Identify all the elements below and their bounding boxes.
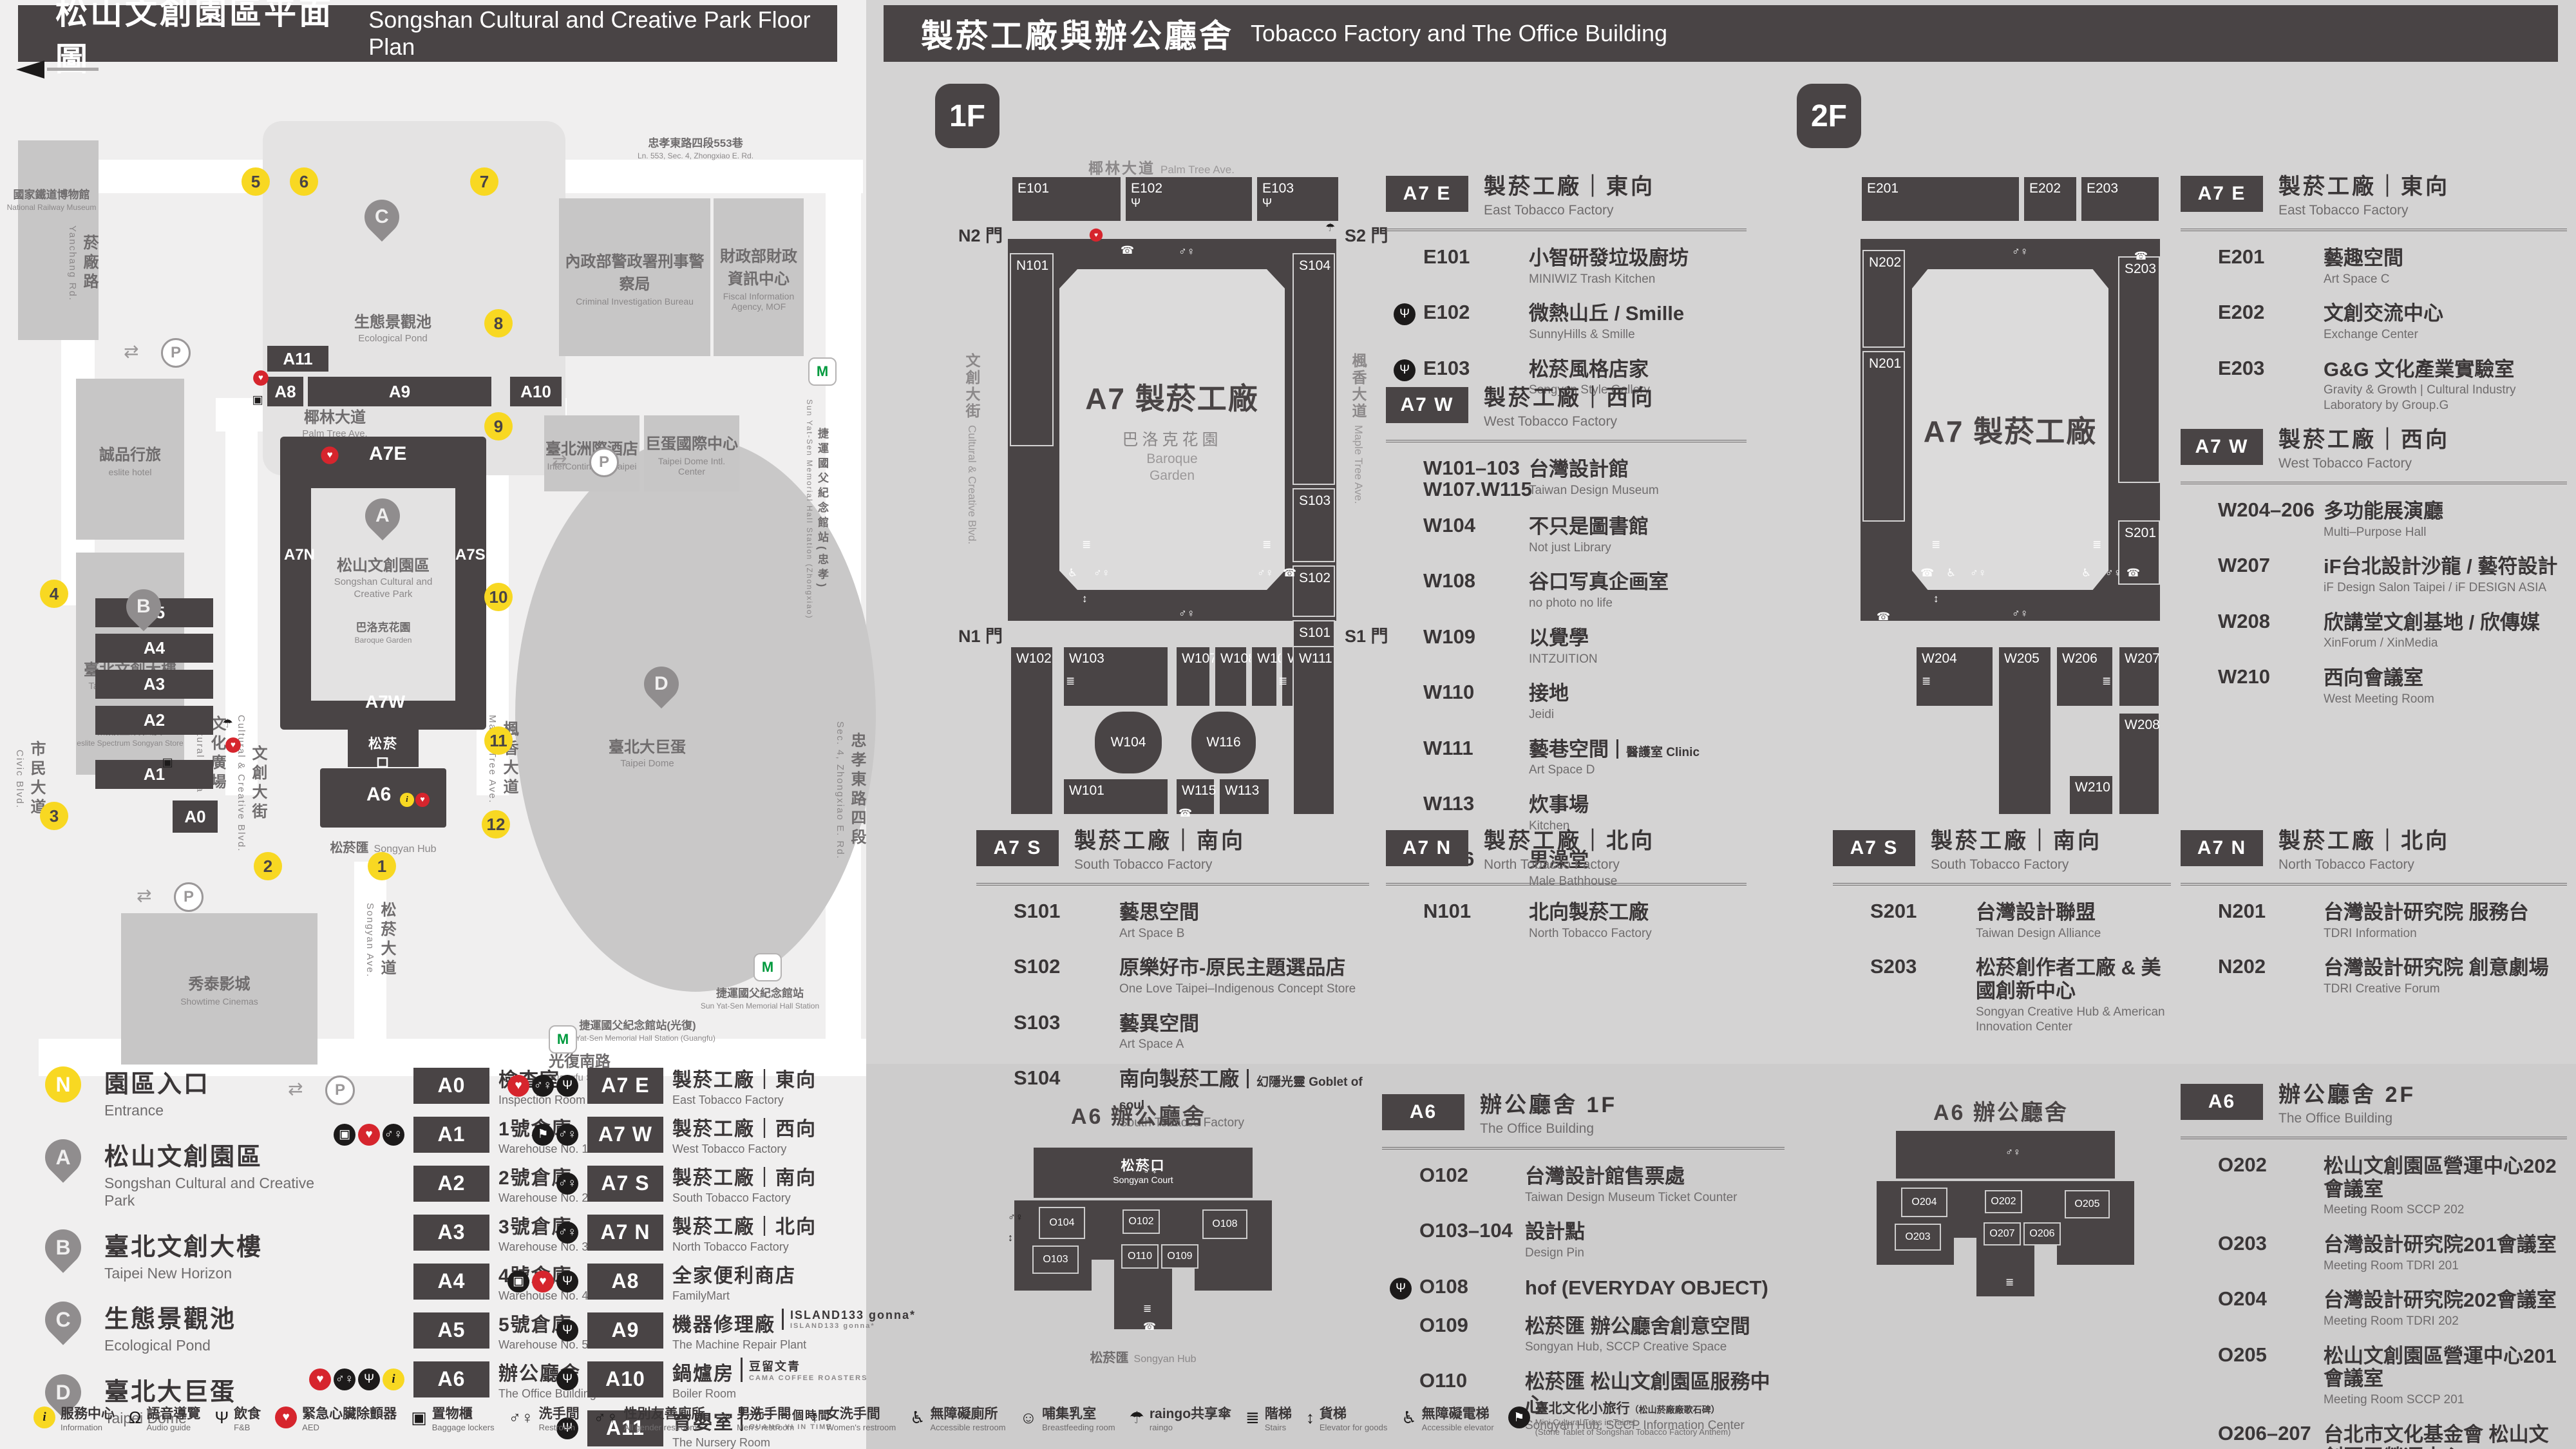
room-note: 醫護室 Clinic xyxy=(1626,746,1700,759)
phone-icon: ☎ xyxy=(1283,567,1296,580)
directory-row-E102: ΨE102微熱山丘 / SmilleSunnyHills & Smille xyxy=(1386,302,1747,342)
section-title-en: South Tobacco Factory xyxy=(1074,857,1369,873)
facility-womens: ♀女洗手間Women's restroom xyxy=(808,1403,896,1432)
room-text: hof (EVERYDAY OBJECT) xyxy=(1525,1276,1785,1300)
facility-en: Women's restroom xyxy=(826,1423,896,1432)
plan-door-label: S2 門 xyxy=(1345,222,1388,247)
directory-2f-south: A7 S製菸工廠｜南向South Tobacco FactoryS201台灣設計… xyxy=(1833,823,2171,1035)
map-entrance-number-3: 3 xyxy=(40,802,68,830)
room-code: O108 xyxy=(1419,1276,1521,1298)
map-text: 國家鐵道博物館National Railway Museum xyxy=(7,185,97,212)
row-icons xyxy=(2181,358,2214,359)
direction-arrow-icon: ⇄ xyxy=(552,450,567,471)
section-code: A7 W xyxy=(1386,387,1468,423)
row-icons xyxy=(2181,1155,2214,1156)
plan-door-label: S1 門 xyxy=(1345,622,1388,647)
directory-row-W210: W210西向會議室West Meeting Room xyxy=(2181,667,2567,706)
facility-icon-legend: i服務中心InformationΩ語音導覽Audio guideΨ飲食F&B♥緊… xyxy=(33,1390,1418,1445)
facility-zh: 無障礙廁所 xyxy=(931,1403,1006,1423)
room-code: O203 xyxy=(2218,1233,2320,1255)
phone-icon: ☎ xyxy=(2134,250,2148,263)
stairs-icon: ≣ xyxy=(1262,538,1271,551)
legend-building-A7N: ♂♀A7 N製菸工廠｜北向North Tobacco Factory xyxy=(496,1211,866,1254)
directory-office-2f: A6辦公廳舍 2FThe Office BuildingO202松山文創園區營運… xyxy=(2181,1077,2567,1449)
info-icon: i xyxy=(33,1406,55,1428)
facility-zh: 性別友善廁所 xyxy=(624,1403,705,1423)
map-text: 忠孝東路四段553巷Ln. 553, Sec. 4, Zhongxiao E. … xyxy=(638,134,753,160)
floor-1-badge: 1F xyxy=(935,84,999,148)
directory-row-E101: E101小智研發垃圾廚坊MINIWIZ Trash Kitchen xyxy=(1386,247,1747,287)
facility-zh: 貨梯 xyxy=(1320,1403,1388,1423)
facility-en: Audio guide xyxy=(146,1423,200,1432)
plan-room-label: E201 xyxy=(1867,181,1899,196)
trip-icon: ⚑ xyxy=(1508,1406,1530,1428)
restroom-icon: ♂♀ xyxy=(509,1408,534,1428)
directory-row-O102: O102台灣設計館售票處Taiwan Design Museum Ticket … xyxy=(1382,1165,1785,1205)
row-icons xyxy=(976,1012,1010,1014)
section-title-zh: 製菸工廠｜南向 xyxy=(1931,823,2171,855)
section-code: A7 S xyxy=(976,830,1059,866)
row-icons xyxy=(2181,247,2214,248)
room-text: 藝異空間Art Space A xyxy=(1119,1012,1369,1052)
room-name-zh: hof (EVERYDAY OBJECT) xyxy=(1525,1276,1785,1300)
building-name-zh: 機器修理廠ISLAND133 gonna*ISLAND133 gonna* xyxy=(672,1309,916,1337)
plan-room-W102: W102 xyxy=(1010,646,1054,815)
room-name-zh: 接地 xyxy=(1529,682,1747,705)
directory-2f-west: A7 W製菸工廠｜西向West Tobacco FactoryW204–206多… xyxy=(2181,422,2567,707)
aed-icon: ♥ xyxy=(507,1075,529,1097)
facility-breastfeeding: ☺哺集乳室Breastfeeding room xyxy=(1020,1403,1115,1432)
room-code: O110 xyxy=(1419,1370,1521,1392)
facility-accessible: ♿無障礙廁所Accessible restroom xyxy=(910,1403,1005,1432)
room-code: W208 xyxy=(2218,611,2320,632)
section-title-zh: 製菸工廠｜西向 xyxy=(1484,380,1747,412)
directory-row-O103104: O103–104設計點Design Pin xyxy=(1382,1220,1785,1260)
facility-zh: 男洗手間 xyxy=(737,1403,794,1423)
directory-row-E203: E203G&G 文化產業實驗室Gravity & Growth | Cultur… xyxy=(2181,358,2567,413)
row-icons xyxy=(976,956,1010,958)
goods-elevator-icon: ↕ xyxy=(1933,592,1939,605)
stairs-icon: ≣ xyxy=(1922,675,1931,688)
directory-row-N202: N202台灣設計研究院 創意劇場TDRI Creative Forum xyxy=(2181,956,2567,996)
facility-en: Men's restroom xyxy=(737,1423,794,1432)
accessible-icon: ♿ xyxy=(2081,567,2091,580)
section-header: A7 S製菸工廠｜南向South Tobacco Factory xyxy=(976,823,1369,885)
fnb-icon: Ψ xyxy=(1394,359,1416,381)
facility-zh: 階梯 xyxy=(1265,1403,1292,1423)
plan-door-label: N2 門 xyxy=(958,222,1003,247)
facility-en2: (Stone Tablet of Songshan Tobacco Factor… xyxy=(1535,1427,1731,1437)
room-name-zh: 松山文創園區營運中心201會議室 xyxy=(2324,1345,2567,1390)
room-text: iF台北設計沙龍 / 藝符設計iF Design Salon Taipei / … xyxy=(2324,555,2567,595)
fnb-icon: Ψ xyxy=(1390,1278,1412,1300)
room-name-en: no photo no life xyxy=(1529,596,1747,611)
accessible-icon: ♿ xyxy=(1946,567,1956,580)
restroom-icon: ♂♀ xyxy=(2005,1147,2021,1159)
fnb-icon: Ψ xyxy=(1394,303,1416,325)
plan-garden-en: Garden xyxy=(1150,468,1195,484)
phone-icon: ☎ xyxy=(2126,567,2140,580)
map-block-label-zh: 巨蛋國際中心 xyxy=(645,431,738,453)
facility-zh: 飲食 xyxy=(234,1403,261,1423)
office-room-O203: O203 xyxy=(1895,1224,1941,1251)
phone-icon: ☎ xyxy=(1920,567,1934,580)
phone-icon: ☎ xyxy=(1121,244,1134,257)
directory-row-E202: E202文創交流中心Exchange Center xyxy=(2181,302,2567,342)
office-room-O109: O109 xyxy=(1161,1244,1198,1269)
restroom-icon: ♂♀ xyxy=(556,1173,578,1195)
building-code: A3 xyxy=(413,1215,489,1251)
plan-room-S104: S104 xyxy=(1293,253,1335,485)
aed-icon: ♥ xyxy=(309,1368,331,1390)
map-text-zh: 菸廠路 xyxy=(78,225,100,301)
plan-room-label: W113 xyxy=(1225,783,1259,798)
row-icons xyxy=(2181,1345,2214,1346)
map-building-A4: A4 xyxy=(95,634,213,663)
plan-room-W107: W107 xyxy=(1175,646,1211,707)
section-titles: 製菸工廠｜西向West Tobacco Factory xyxy=(2278,422,2567,471)
aed-icon: ♥ xyxy=(275,1406,297,1428)
plan-room-E201: E201 xyxy=(1861,176,2020,222)
fnb-icon: Ψ xyxy=(556,1320,578,1341)
phone-icon: ☎ xyxy=(1179,807,1192,820)
room-name-zh: 台灣設計研究院201會議室 xyxy=(2324,1233,2567,1256)
facility-zh: 服務中心 xyxy=(61,1403,115,1423)
fnb-icon: Ψ xyxy=(358,1368,380,1390)
plan-room-label: W111 xyxy=(1299,651,1332,666)
restroom-icon: ♂♀ xyxy=(1143,1166,1159,1177)
section-title-zh: 製菸工廠｜東向 xyxy=(1484,169,1747,200)
map-block-label-zh: 誠品行旅 xyxy=(99,442,161,464)
restroom-icon: ♂♀ xyxy=(1143,1166,1159,1177)
row-icons xyxy=(2181,555,2214,556)
office-plan-2f: A6 辦公廳舍O204O203O202O207O206O205♂♀≣ xyxy=(1857,1086,2154,1331)
building-name-en: South Tobacco Factory xyxy=(672,1191,866,1205)
phone-icon: ☎ xyxy=(1143,1320,1156,1333)
row-icons: Ψ xyxy=(1386,302,1419,325)
floor-2-badge: 2F xyxy=(1797,84,1861,148)
row-icons: ♂♀ xyxy=(496,1222,578,1244)
plan-room-E102: E102Ψ xyxy=(1124,176,1253,222)
section-title-zh: 製菸工廠｜南向 xyxy=(1074,823,1369,855)
room-text: 藝思空間Art Space B xyxy=(1119,901,1369,941)
room-code: S102 xyxy=(1014,956,1115,978)
section-header: A7 E製菸工廠｜東向East Tobacco Factory xyxy=(1386,169,1747,231)
map-entrance-number-6: 6 xyxy=(290,167,318,196)
map-entrance-number-9: 9 xyxy=(484,412,513,440)
plan-room-E203: E203 xyxy=(2080,176,2160,222)
room-text: 台灣設計研究院 創意劇場TDRI Creative Forum xyxy=(2324,956,2567,996)
room-text: 小智研發垃圾廚坊MINIWIZ Trash Kitchen xyxy=(1529,247,1747,287)
directory-row-W208: W208欣講堂文創基地 / 欣傳媒XinForum / XinMedia xyxy=(2181,611,2567,651)
legend-pin-N: N園區入口Entrance xyxy=(45,1064,316,1120)
map-text: 捷運國父紀念館站(光復)Sun Yat-Sen Memorial Hall St… xyxy=(560,1016,715,1043)
facility-umbrella: ☂raingo共享傘raingo xyxy=(1130,1403,1231,1432)
room-name-en: TDRI Information xyxy=(2324,926,2567,942)
plan-room-label: W206 xyxy=(2062,651,2098,666)
section-title-en: West Tobacco Factory xyxy=(2278,456,2567,471)
section-title-en: East Tobacco Factory xyxy=(1484,203,1747,218)
directory-row-W109: W109以覺學INTZUITION xyxy=(1386,627,1747,667)
audio-icon: Ω xyxy=(129,1408,141,1428)
map-building-A1: A1 xyxy=(95,760,213,789)
room-code: N202 xyxy=(2218,956,2320,978)
office-room-O206: O206 xyxy=(2023,1222,2061,1245)
building-code: A7 E xyxy=(587,1068,663,1104)
plan-room-label: W205 xyxy=(2004,651,2040,666)
room-name-zh: 松菸創作者工廠 & 美國創新中心 xyxy=(1976,956,2171,1002)
map-text: 捷運國父紀念館站Sun Yat-Sen Memorial Hall Statio… xyxy=(701,984,819,1010)
plan-room-label: N201 xyxy=(1869,356,1901,371)
legend-pin-C: C生態景觀池Ecological Pond xyxy=(45,1299,316,1355)
map-text-en: Songyan Ave. xyxy=(365,902,375,979)
building-code: A0 xyxy=(413,1068,489,1104)
room-name-en: INTZUITION xyxy=(1529,652,1747,667)
room-name-zh: 藝趣空間 xyxy=(2324,247,2567,270)
plan-room-label: E103 xyxy=(1262,181,1294,196)
plan-room-E202: E202 xyxy=(2023,176,2078,222)
plan-room-W205: W205 xyxy=(1998,646,2052,815)
row-icons xyxy=(1833,956,1866,958)
stairs-icon: ≣ xyxy=(2005,1276,2014,1289)
room-text: 文創交流中心Exchange Center xyxy=(2324,302,2567,342)
directory-row-O206207: O206–207台北市文化基金會 松山文創園區營運中心Taipei Cultur… xyxy=(2181,1423,2567,1449)
section-code: A7 N xyxy=(2181,830,2263,866)
map-text-en: Ecological Pond xyxy=(354,333,431,344)
facility-en: Stairs xyxy=(1265,1423,1292,1432)
room-code: S101 xyxy=(1014,901,1115,922)
room-text: 接地Jeidi xyxy=(1529,682,1747,722)
restroom-icon: ♂♀ xyxy=(1008,1212,1023,1224)
row-icons xyxy=(1382,1220,1416,1222)
directory-row-W104: W104不只是圖書館Not just Library xyxy=(1386,515,1747,555)
section-titles: 製菸工廠｜北向North Tobacco Factory xyxy=(2278,823,2567,873)
directory-row-E201: E201藝趣空間Art Space C xyxy=(2181,247,2567,287)
stairs-icon: ≣ xyxy=(1278,675,1287,688)
room-code: O102 xyxy=(1419,1165,1521,1186)
map-text-zh: 生態景觀池 xyxy=(354,309,431,332)
room-text: 原樂好市-原民主題選品店One Love Taipei–Indigenous C… xyxy=(1119,956,1369,996)
umbrella-icon: ☂ xyxy=(1325,222,1335,234)
building-name-zh: 製菸工廠｜南向 xyxy=(672,1162,866,1190)
room-name-zh: G&G 文化產業實驗室 xyxy=(2324,358,2567,381)
stairs-icon: ≣ xyxy=(1931,538,1940,551)
row-icons: ♥♂♀Ψ xyxy=(496,1075,578,1097)
section-code: A7 E xyxy=(1386,176,1468,212)
plan-room-W109: W109 xyxy=(1251,646,1278,707)
room-name-zh: 西向會議室 xyxy=(2324,667,2567,690)
row-icons: ▣♥♂♀ xyxy=(322,1124,404,1146)
office-room-O204: O204 xyxy=(1901,1188,1947,1217)
phone-icon: ☎ xyxy=(1179,807,1192,820)
room-code: O103–104 xyxy=(1419,1220,1521,1242)
room-name-en: Art Space A xyxy=(1119,1037,1369,1052)
plan-room-label: S104 xyxy=(1299,258,1331,273)
row-icons: ⚑♂♀ xyxy=(496,1124,578,1146)
map-entrance-number-5: 5 xyxy=(241,167,270,196)
room-name-zh: 藝巷空間醫護室 Clinic xyxy=(1529,738,1747,761)
map-label-A7W: A7W xyxy=(365,692,405,712)
facility-lockers: ▣置物櫃Baggage lockers xyxy=(411,1403,494,1432)
womens-icon: ♀ xyxy=(808,1408,821,1428)
row-icons: Ψ xyxy=(1382,1276,1416,1300)
plan-room-label: S103 xyxy=(1299,493,1331,508)
map-label-A6: A6 xyxy=(366,784,391,806)
tenant-note: 豆留文青CAMA COFFEE ROASTERS xyxy=(741,1358,867,1382)
phone-icon: ☎ xyxy=(1877,611,1890,623)
stairs-icon: ≣ xyxy=(2005,1276,2014,1289)
plan-room-label: W208 xyxy=(2125,717,2160,732)
room-code: O202 xyxy=(2218,1155,2320,1176)
map-building-A11: A11 xyxy=(267,346,328,372)
map-text-zh: 忠孝東路四段 xyxy=(846,721,868,860)
plan-room-label: W107 xyxy=(1182,651,1217,666)
map-text-en: Yanchang Rd. xyxy=(67,225,78,301)
map-text-zh: 捷運國父紀念館站 xyxy=(701,984,819,1000)
map-text-en: Civic Blvd. xyxy=(14,741,25,818)
plan-room-label: N101 xyxy=(1016,258,1048,273)
room-name-zh: 原樂好市-原民主題選品店 xyxy=(1119,956,1369,980)
room-text: 台灣設計館售票處Taiwan Design Museum Ticket Coun… xyxy=(1525,1165,1785,1205)
row-icons xyxy=(976,901,1010,902)
aed-icon: ♥ xyxy=(250,367,272,389)
map-text: 椰林大道Palm Tree Ave. xyxy=(302,404,367,439)
section-title-en: North Tobacco Factory xyxy=(1484,857,1747,873)
facility-restroom: ♂♀洗手間Restroom xyxy=(509,1403,580,1432)
map-block: 誠品行旅eslite hotel xyxy=(76,379,184,540)
room-code: E103 xyxy=(1423,358,1525,379)
room-name-zh: 欣講堂文創基地 / 欣傳媒 xyxy=(2324,611,2567,634)
aed-icon: ♥ xyxy=(222,734,244,756)
row-icons xyxy=(1386,901,1419,902)
stairs-icon: ≣ xyxy=(2092,538,2101,551)
plan-room-label: W207 xyxy=(2125,651,2160,666)
lockers-icon: ▣ xyxy=(334,1124,355,1146)
directory-row-W111: W111藝巷空間醫護室 ClinicArt Space D xyxy=(1386,738,1747,778)
facility-allgender: ♂♀性別友善廁所All gender restroom xyxy=(594,1403,705,1432)
stairs-icon: ≣ xyxy=(1066,675,1075,688)
section-code: A7 W xyxy=(2181,429,2263,465)
directory-1f-north: A7 N製菸工廠｜北向North Tobacco FactoryN101北向製菸… xyxy=(1386,823,1747,941)
stairs-icon: ≣ xyxy=(1931,538,1940,551)
room-code: W109 xyxy=(1423,627,1525,648)
room-name-zh: 台灣設計館 xyxy=(1529,458,1747,481)
legend-pin-en: Songshan Cultural and Creative Park xyxy=(104,1175,316,1210)
map-entrance-number-7: 7 xyxy=(470,167,498,196)
right-header-title-en: Tobacco Factory and The Office Building xyxy=(1251,20,1667,47)
facility-en: AED xyxy=(302,1423,397,1432)
aed-icon: ♥ xyxy=(358,1124,380,1146)
plan-room-W108: W108 xyxy=(1214,646,1247,707)
directory-office-1f: A6辦公廳舍 1FThe Office BuildingO102台灣設計館售票處… xyxy=(1382,1087,1785,1449)
map-text-zh: 臺北大巨蛋 xyxy=(609,734,686,757)
map-text: 捷運國父紀念館站(忠孝)Sun Yat-Sen Memorial Hall St… xyxy=(802,399,830,620)
building-name-zh: 鍋爐房豆留文青CAMA COFFEE ROASTERS xyxy=(672,1358,867,1386)
building-code: A7 S xyxy=(587,1166,663,1202)
section-titles: 製菸工廠｜西向West Tobacco Factory xyxy=(1484,380,1747,430)
room-name-en: Design Pin xyxy=(1525,1245,1785,1261)
room-name-zh: 台北市文化基金會 松山文創園區營運中心 xyxy=(2324,1423,2567,1449)
restroom-icon: ♂♀ xyxy=(2105,567,2122,580)
room-name-en: Meeting Room SCCP 202 xyxy=(2324,1202,2567,1218)
room-name-en: One Love Taipei–Indigenous Concept Store xyxy=(1119,981,1369,997)
room-text: 以覺學INTZUITION xyxy=(1529,627,1747,667)
facility-mens: ♂男洗手間Men's restroom xyxy=(719,1403,795,1432)
room-name-en: Taiwan Design Museum Ticket Counter xyxy=(1525,1190,1785,1206)
section-header: A6辦公廳舍 2FThe Office Building xyxy=(2181,1077,2567,1139)
lockers-icon: ▣ xyxy=(411,1408,427,1428)
phone-icon: ☎ xyxy=(1121,244,1134,257)
restroom-icon: ♂♀ xyxy=(1179,245,1195,258)
row-icons xyxy=(1386,247,1419,248)
stairs-icon: ≣ xyxy=(1082,538,1091,551)
stairs-icon: ≣ xyxy=(1143,1302,1151,1315)
map-text: 市民大道Civic Blvd. xyxy=(12,741,48,818)
room-name-en: North Tobacco Factory xyxy=(1529,926,1747,942)
map-text-en: Sun Yat-Sen Memorial Hall Station xyxy=(701,1001,819,1010)
map-text-zh: 捷運國父紀念館站(光復) xyxy=(560,1016,715,1032)
room-text: 微熱山丘 / SmilleSunnyHills & Smille xyxy=(1529,302,1747,342)
room-code: N201 xyxy=(2218,901,2320,922)
row-icons xyxy=(2181,1233,2214,1235)
plan-garden-zh: 巴洛克花園 xyxy=(1122,427,1222,450)
lockers-icon: ▣ xyxy=(160,752,176,772)
room-name-zh: 台灣設計研究院 服務台 xyxy=(2324,901,2567,924)
office-room-O104: O104 xyxy=(1039,1207,1085,1239)
restroom-icon: ♂♀ xyxy=(2012,607,2029,620)
map-entrance-number-11: 11 xyxy=(484,726,513,755)
section-title-en: The Office Building xyxy=(2278,1111,2567,1126)
direction-arrow-icon: ⇄ xyxy=(124,341,138,362)
aed-icon: ♥ xyxy=(321,446,338,464)
room-name-zh: 微熱山丘 / Smille xyxy=(1529,302,1747,325)
room-code: E201 xyxy=(2218,247,2320,268)
phone-icon: ☎ xyxy=(1143,1320,1156,1333)
legend-pin-zh: 臺北文創大樓 xyxy=(104,1227,316,1262)
office-room-O102: O102 xyxy=(1122,1209,1160,1234)
map-pin-icon: N xyxy=(45,1066,81,1103)
directory-row-S103: S103藝異空間Art Space A xyxy=(976,1012,1369,1052)
right-header: 製菸工廠與辦公廳舍 Tobacco Factory and The Office… xyxy=(884,5,2558,62)
room-text: 台灣設計研究院201會議室Meeting Room TDRI 201 xyxy=(2324,1233,2567,1273)
row-icons xyxy=(2181,901,2214,902)
floor-plan-poster: 松山文創園區平面圖 Songshan Cultural and Creative… xyxy=(0,0,2576,1449)
section-title-en: West Tobacco Factory xyxy=(1484,414,1747,430)
legend-pins: N園區入口EntranceA松山文創園區Songshan Cultural an… xyxy=(45,1064,316,1444)
room-code: W113 xyxy=(1423,793,1525,815)
room-name-zh: 松菸匯 辦公廳舍創意空間 xyxy=(1525,1315,1785,1338)
map-pin-icon: A xyxy=(37,1132,88,1182)
directory-row-O109: O109松菸匯 辦公廳舍創意空間Songyan Hub, SCCP Creati… xyxy=(1382,1315,1785,1355)
fnb-icon: Ψ xyxy=(1131,196,1252,210)
directory-row-O203: O203台灣設計研究院201會議室Meeting Room TDRI 201 xyxy=(2181,1233,2567,1273)
aed-icon: ♥ xyxy=(415,793,430,807)
building-name-en: North Tobacco Factory xyxy=(672,1240,866,1254)
facility-zh: 洗手間 xyxy=(539,1403,580,1423)
map-block-label-en: Taipei Dome Intl. Center xyxy=(644,456,739,477)
room-name-zh: 多功能展演廳 xyxy=(2324,500,2567,523)
facility-trip: ⚑臺北文化小旅行（松山菸廠廠歌石碑）Mini Cultural Trips in… xyxy=(1508,1398,1731,1437)
plan-room-label: N202 xyxy=(1869,255,1901,270)
office-room-O205: O205 xyxy=(2065,1190,2110,1218)
section-titles: 辦公廳舍 1FThe Office Building xyxy=(1480,1087,1785,1137)
room-text: 台灣設計研究院 服務台TDRI Information xyxy=(2324,901,2567,941)
office-plan-title: A6 辦公廳舍 xyxy=(1933,1095,2069,1126)
left-header: 松山文創園區平面圖 Songshan Cultural and Creative… xyxy=(18,5,837,62)
room-name-zh: 以覺學 xyxy=(1529,627,1747,650)
section-title-en: East Tobacco Factory xyxy=(2278,203,2567,218)
plan-room-label: W116 xyxy=(1206,735,1240,750)
